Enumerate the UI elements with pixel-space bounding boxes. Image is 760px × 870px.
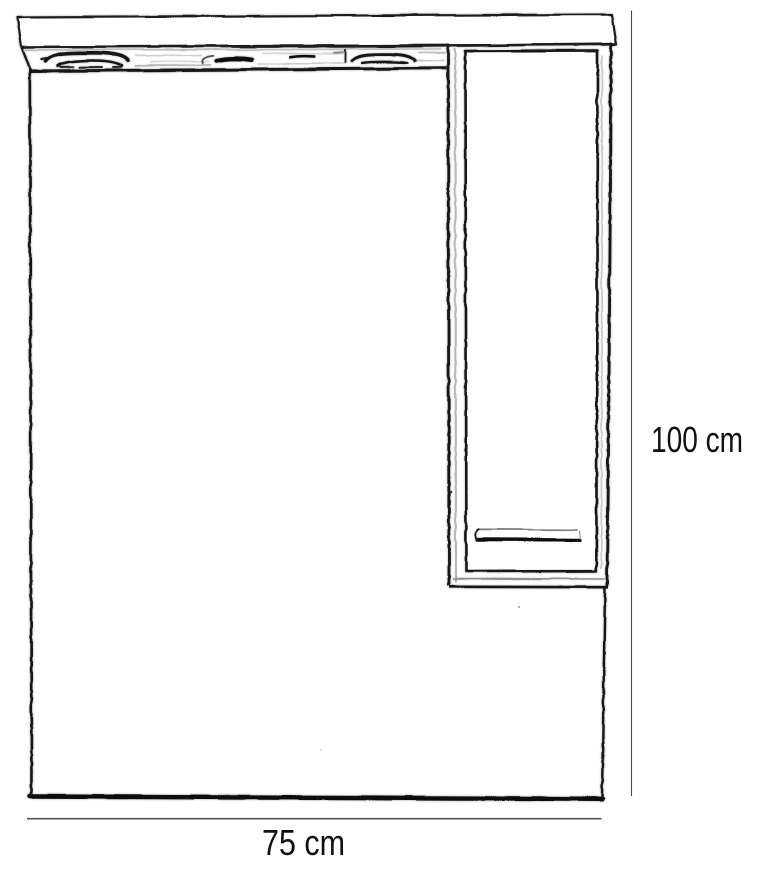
svg-text:100 cm: 100 cm <box>651 419 743 460</box>
svg-text:75 cm: 75 cm <box>262 822 345 863</box>
